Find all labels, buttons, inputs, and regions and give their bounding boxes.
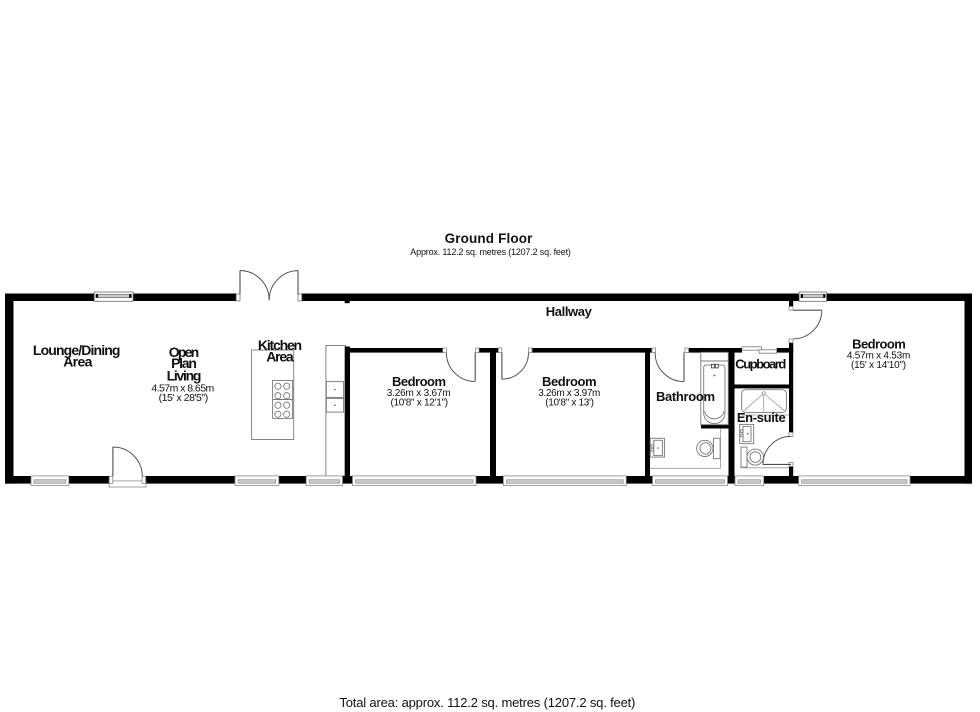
svg-text:(10'8" x 13'): (10'8" x 13'): [545, 397, 594, 408]
svg-text:(15' x 28'5"): (15' x 28'5"): [159, 392, 209, 404]
svg-text:Ground Floor: Ground Floor: [445, 231, 534, 246]
svg-text:(15' x 14'10"): (15' x 14'10"): [851, 360, 906, 371]
svg-text:Living: Living: [167, 368, 202, 384]
svg-text:Bedroom: Bedroom: [392, 374, 446, 389]
svg-text:Bathroom: Bathroom: [656, 389, 715, 404]
svg-text:Area: Area: [63, 354, 92, 370]
svg-text:Approx. 112.2 sq. metres (1207: Approx. 112.2 sq. metres (1207.2 sq. fee…: [410, 247, 571, 257]
svg-text:Total area: approx. 112.2 sq.: Total area: approx. 112.2 sq. metres (12…: [339, 695, 635, 710]
svg-text:Bedroom: Bedroom: [542, 374, 597, 389]
svg-text:Area: Area: [266, 348, 294, 364]
svg-text:(10'8" x 12'1"): (10'8" x 12'1"): [390, 397, 448, 408]
svg-text:Cupboard: Cupboard: [735, 356, 786, 371]
svg-text:Hallway: Hallway: [546, 304, 593, 319]
svg-text:Bedroom: Bedroom: [852, 337, 906, 352]
svg-text:En-suite: En-suite: [737, 410, 786, 425]
